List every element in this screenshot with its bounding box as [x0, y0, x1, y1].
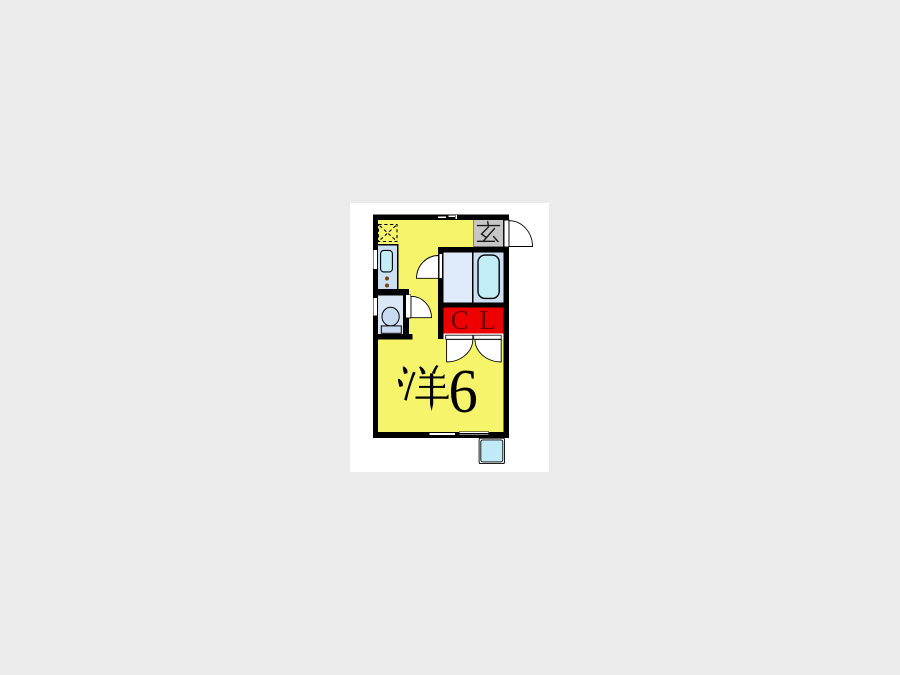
svg-text:C L: C L — [451, 305, 498, 335]
svg-text:6: 6 — [449, 357, 478, 426]
